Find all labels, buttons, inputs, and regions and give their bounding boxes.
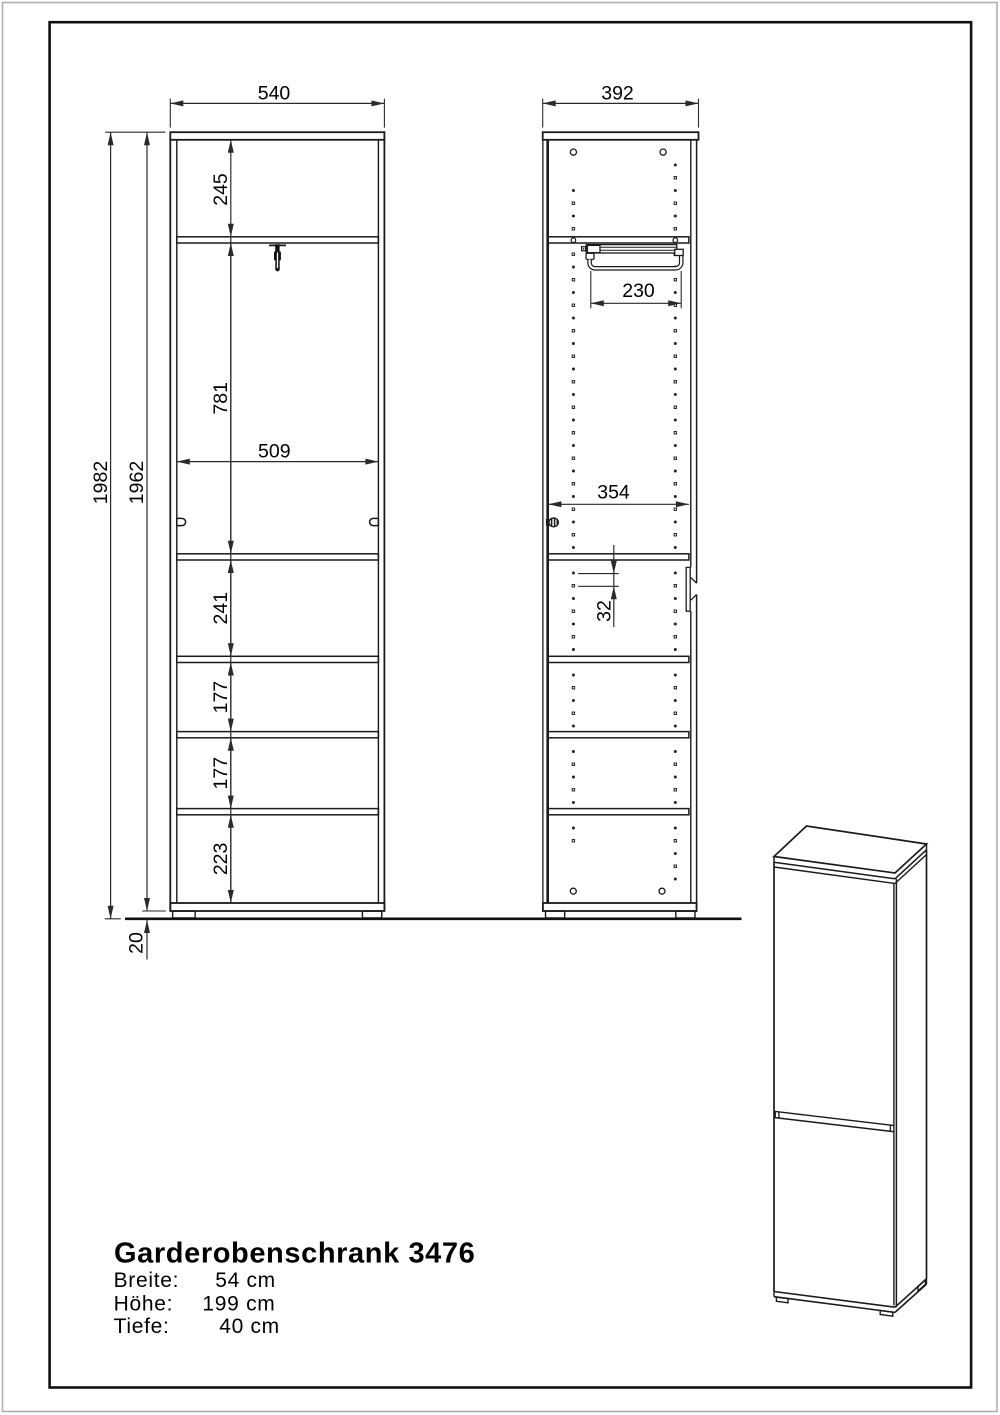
svg-text:177: 177: [210, 757, 232, 790]
svg-text:Breite:: Breite:: [114, 1269, 180, 1292]
svg-text:Tiefe:: Tiefe:: [114, 1315, 170, 1338]
svg-text:241: 241: [210, 592, 232, 625]
svg-text:177: 177: [210, 681, 232, 714]
svg-text:1962: 1962: [126, 461, 148, 504]
svg-text:199 cm: 199 cm: [202, 1292, 275, 1315]
svg-text:Garderobenschrank 3476: Garderobenschrank 3476: [114, 1238, 475, 1270]
svg-text:230: 230: [622, 280, 655, 302]
svg-text:20: 20: [126, 932, 148, 954]
svg-text:392: 392: [601, 82, 634, 104]
svg-text:32: 32: [593, 600, 615, 622]
svg-text:Höhe:: Höhe:: [114, 1292, 174, 1315]
svg-text:781: 781: [210, 382, 232, 415]
svg-text:1982: 1982: [90, 461, 112, 504]
svg-text:245: 245: [210, 173, 232, 206]
svg-text:354: 354: [597, 481, 630, 503]
svg-text:509: 509: [258, 440, 291, 462]
svg-text:40 cm: 40 cm: [219, 1315, 280, 1338]
svg-text:540: 540: [258, 82, 291, 104]
svg-text:54 cm: 54 cm: [215, 1269, 276, 1292]
svg-text:223: 223: [210, 843, 232, 876]
